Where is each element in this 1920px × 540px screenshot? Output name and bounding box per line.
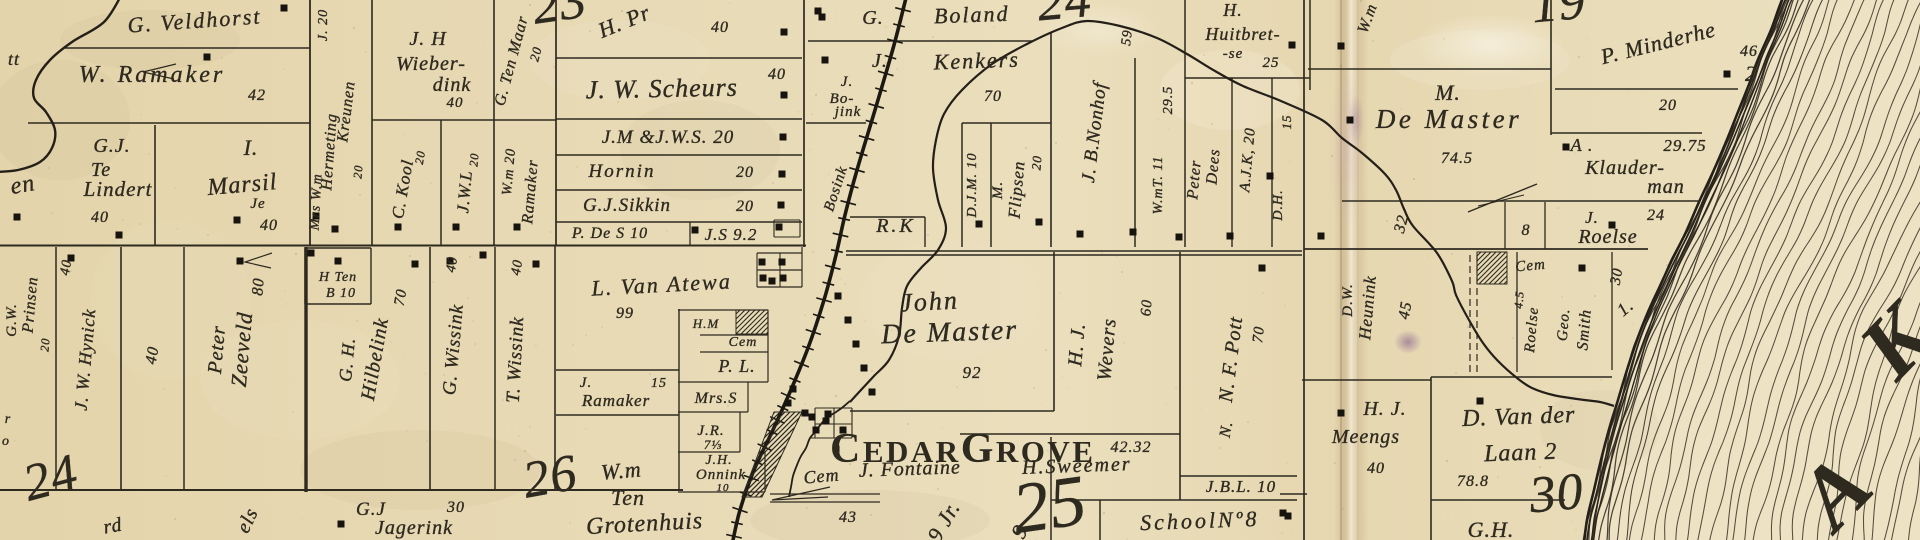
svg-text:D.H.: D.H.: [1271, 189, 1286, 221]
svg-text:40: 40: [509, 258, 527, 276]
svg-text:Laan 2: Laan 2: [1483, 439, 1558, 468]
svg-text:G.W.: G.W.: [4, 303, 20, 336]
svg-text:70: 70: [392, 288, 411, 308]
svg-text:99: 99: [616, 305, 634, 322]
svg-text:20: 20: [736, 198, 754, 215]
svg-text:H.M: H.M: [692, 316, 720, 331]
svg-text:Je: Je: [250, 196, 265, 212]
svg-text:r: r: [5, 412, 11, 427]
svg-text:J.: J.: [872, 50, 888, 72]
svg-text:P. L.: P. L.: [717, 356, 755, 376]
svg-text:30: 30: [446, 499, 465, 516]
svg-text:G.: G.: [862, 7, 883, 29]
svg-text:N.: N.: [1217, 420, 1237, 440]
svg-text:rd: rd: [102, 514, 125, 539]
svg-text:H. J.: H. J.: [1362, 398, 1406, 420]
svg-text:29.75: 29.75: [1663, 136, 1706, 155]
svg-text:H. J.: H. J.: [1064, 322, 1090, 368]
svg-text:G.H.: G.H.: [1468, 517, 1515, 540]
svg-text:45: 45: [1396, 300, 1416, 321]
svg-text:40: 40: [58, 258, 76, 276]
svg-text:4.5: 4.5: [1511, 290, 1527, 309]
svg-text:Peter: Peter: [1184, 159, 1204, 201]
svg-text:20: 20: [1659, 97, 1677, 114]
svg-text:43: 43: [839, 509, 857, 526]
svg-text:Dees: Dees: [1203, 148, 1223, 186]
svg-text:J.S 9.2: J.S 9.2: [705, 225, 758, 244]
svg-text:John: John: [900, 285, 960, 317]
svg-text:J.H.: J.H.: [705, 453, 732, 468]
svg-text:Ramaker: Ramaker: [581, 391, 650, 410]
svg-text:A .: A .: [1570, 135, 1594, 155]
svg-text:H Ten: H Ten: [318, 270, 357, 285]
svg-text:26: 26: [519, 444, 582, 510]
svg-text:De Master: De Master: [1375, 104, 1522, 134]
svg-text:Meengs: Meengs: [1331, 426, 1400, 448]
svg-text:20: 20: [736, 164, 754, 181]
svg-text:M.: M.: [990, 181, 1006, 200]
svg-text:30: 30: [1608, 267, 1627, 288]
svg-text:J.B.L. 10: J.B.L. 10: [1206, 477, 1276, 496]
svg-text:70: 70: [984, 88, 1002, 105]
svg-text:W.mT. 11: W.mT. 11: [1151, 156, 1166, 215]
svg-text:Cem: Cem: [1515, 257, 1547, 276]
svg-text:man: man: [1647, 176, 1684, 198]
svg-text:W.m: W.m: [600, 456, 643, 484]
svg-text:W. Ramaker: W. Ramaker: [79, 62, 225, 88]
svg-text:10: 10: [717, 482, 730, 494]
svg-text:70: 70: [1250, 325, 1268, 344]
svg-text:SchoolNº8: SchoolNº8: [1140, 506, 1260, 535]
svg-text:G.J.: G.J.: [93, 135, 130, 157]
svg-text:Peter: Peter: [204, 324, 230, 375]
svg-text:59: 59: [1119, 29, 1136, 47]
svg-text:15: 15: [1279, 115, 1294, 130]
svg-text:dink: dink: [433, 74, 472, 96]
svg-text:D. Van der: D. Van der: [1461, 402, 1576, 432]
svg-text:D.J.M. 10: D.J.M. 10: [965, 153, 980, 219]
svg-text:80: 80: [249, 277, 268, 296]
svg-text:92: 92: [963, 363, 982, 382]
svg-text:Ten: Ten: [611, 485, 645, 510]
svg-text:Mrs.S: Mrs.S: [694, 390, 738, 407]
svg-text:60: 60: [1138, 298, 1155, 316]
svg-text:Boland: Boland: [934, 1, 1010, 29]
svg-text:J.: J.: [841, 74, 853, 90]
svg-text:J.: J.: [1585, 208, 1599, 227]
svg-text:40: 40: [444, 255, 462, 273]
svg-text:78.8: 78.8: [1457, 473, 1489, 490]
svg-text:J. 20: J. 20: [316, 9, 331, 41]
svg-text:Geo.: Geo.: [1555, 308, 1574, 342]
svg-text:20: 20: [350, 164, 365, 179]
svg-text:De Master: De Master: [880, 315, 1019, 351]
svg-text:15: 15: [651, 376, 667, 391]
svg-text:Lindert: Lindert: [83, 177, 153, 201]
svg-text:B 10: B 10: [326, 286, 356, 301]
svg-text:H.: H.: [1222, 0, 1243, 20]
svg-text:tt: tt: [8, 49, 20, 69]
svg-text:J. W. Scheurs: J. W. Scheurs: [586, 73, 739, 105]
svg-text:29.5: 29.5: [1161, 86, 1176, 115]
svg-text:D.W.: D.W.: [1340, 283, 1356, 317]
svg-text:19: 19: [1529, 0, 1588, 34]
svg-text:7⅓: 7⅓: [704, 437, 722, 452]
svg-text:G. H.: G. H.: [335, 336, 359, 382]
svg-text:20: 20: [1028, 154, 1044, 170]
svg-text:20: 20: [412, 149, 428, 165]
svg-text:Roelse: Roelse: [1577, 226, 1637, 248]
svg-text:Jagerink: Jagerink: [375, 517, 453, 539]
svg-text:Kenkers: Kenkers: [932, 47, 1020, 75]
svg-text:2: 2: [1745, 61, 1757, 86]
svg-text:Cem: Cem: [729, 335, 758, 350]
svg-text:Onnink: Onnink: [696, 467, 746, 483]
svg-text:en: en: [8, 170, 37, 200]
svg-text:20: 20: [37, 337, 52, 352]
svg-text:40: 40: [711, 19, 729, 36]
svg-text:74.5: 74.5: [1441, 150, 1473, 167]
svg-text:46: 46: [1740, 43, 1758, 60]
svg-text:J.: J.: [580, 375, 592, 391]
svg-text:P. De S 10: P. De S 10: [571, 225, 648, 242]
svg-text:24: 24: [1035, 0, 1094, 32]
svg-text:jink: jink: [833, 104, 862, 120]
svg-text:J.W.L: J.W.L: [453, 169, 476, 214]
svg-text:o: o: [2, 434, 10, 449]
svg-text:20: 20: [466, 152, 481, 167]
svg-text:Huitbret-: Huitbret-: [1204, 24, 1280, 44]
svg-text:24: 24: [1647, 207, 1665, 224]
svg-text:42: 42: [248, 87, 266, 104]
svg-text:I.: I.: [243, 135, 259, 160]
svg-text:J.M &J.W.S. 20: J.M &J.W.S. 20: [602, 127, 735, 148]
svg-text:8: 8: [1522, 222, 1531, 239]
svg-text:R.K: R.K: [875, 215, 916, 237]
svg-text:Wieber-: Wieber-: [396, 53, 466, 75]
svg-text:Hornin: Hornin: [588, 161, 656, 182]
svg-text:40: 40: [91, 209, 109, 226]
svg-text:40: 40: [1367, 460, 1385, 477]
svg-text:M.: M.: [1434, 80, 1461, 105]
svg-text:J. H: J. H: [409, 28, 447, 50]
svg-text:40: 40: [143, 345, 163, 366]
svg-text:G.J.Sikkin: G.J.Sikkin: [583, 195, 671, 216]
svg-text:40: 40: [260, 217, 278, 234]
svg-text:Smith: Smith: [1574, 308, 1595, 351]
svg-text:25: 25: [1263, 55, 1280, 71]
svg-text:40: 40: [447, 95, 464, 111]
svg-text:30: 30: [1526, 463, 1586, 525]
svg-text:-se: -se: [1223, 46, 1244, 62]
svg-text:40: 40: [768, 66, 786, 83]
